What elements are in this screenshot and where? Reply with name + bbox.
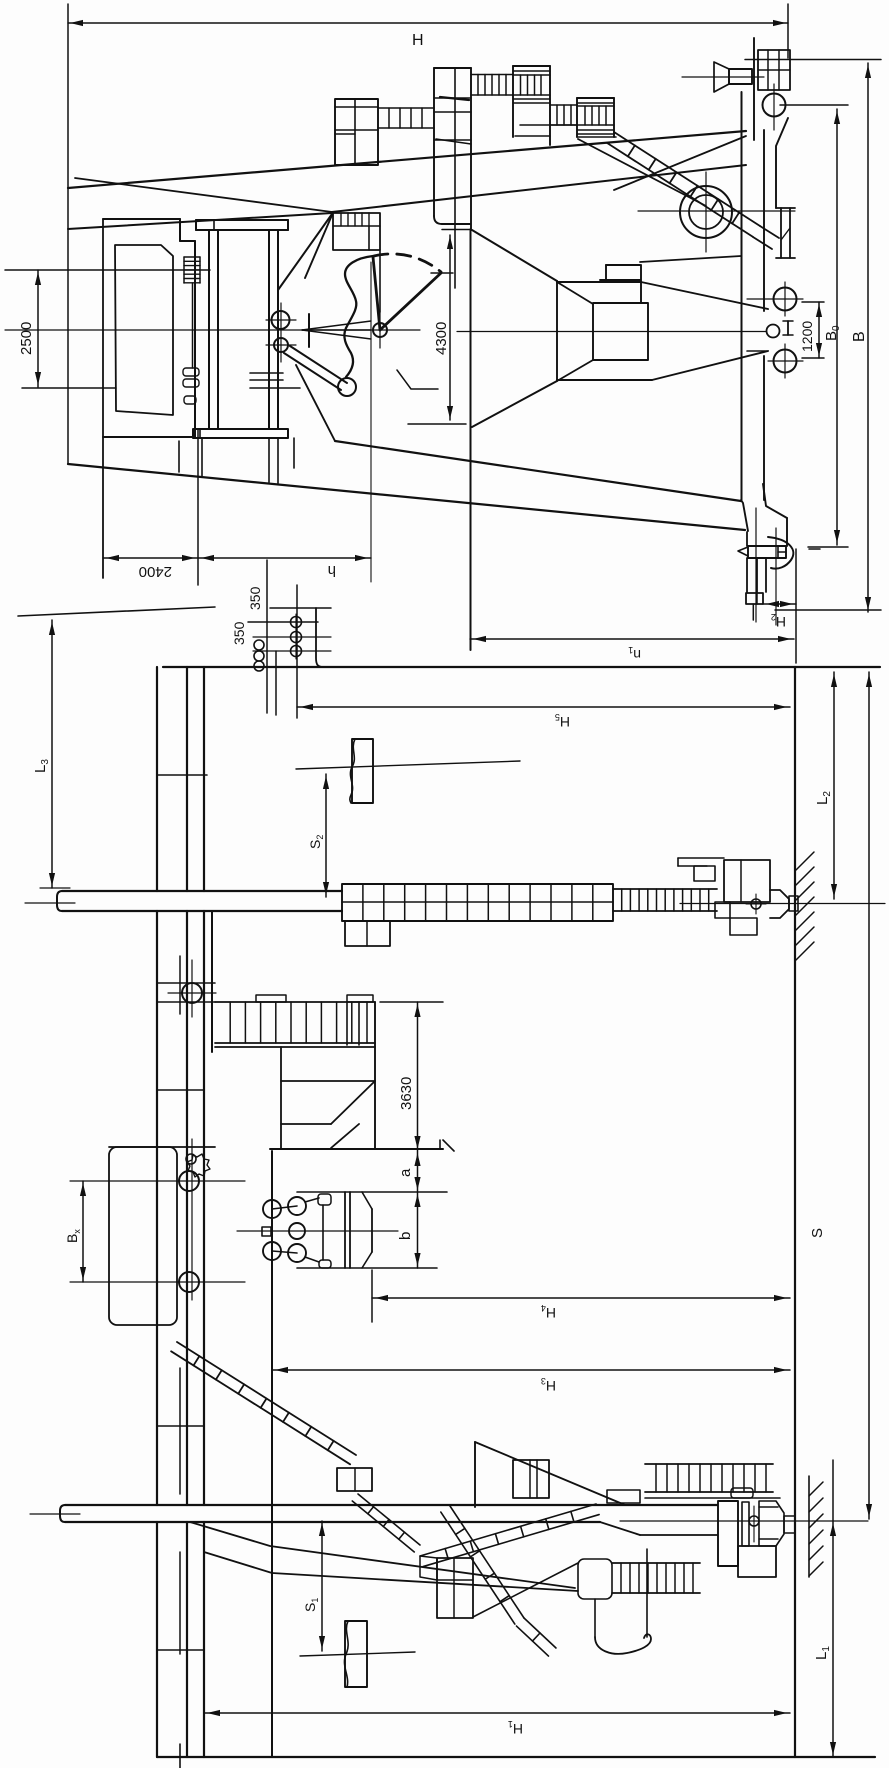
svg-text:S: S bbox=[809, 1228, 826, 1238]
svg-text:350: 350 bbox=[231, 621, 247, 645]
svg-text:b: b bbox=[397, 1232, 414, 1240]
svg-text:h: h bbox=[328, 562, 336, 579]
svg-text:H: H bbox=[412, 32, 424, 49]
svg-text:B: B bbox=[851, 331, 868, 342]
svg-text:2500: 2500 bbox=[18, 322, 35, 355]
svg-text:3630: 3630 bbox=[398, 1077, 415, 1110]
svg-text:1200: 1200 bbox=[799, 321, 815, 352]
svg-text:350: 350 bbox=[247, 586, 263, 610]
svg-text:2400: 2400 bbox=[139, 563, 172, 580]
svg-text:a: a bbox=[397, 1168, 414, 1177]
svg-text:4300: 4300 bbox=[433, 322, 450, 355]
